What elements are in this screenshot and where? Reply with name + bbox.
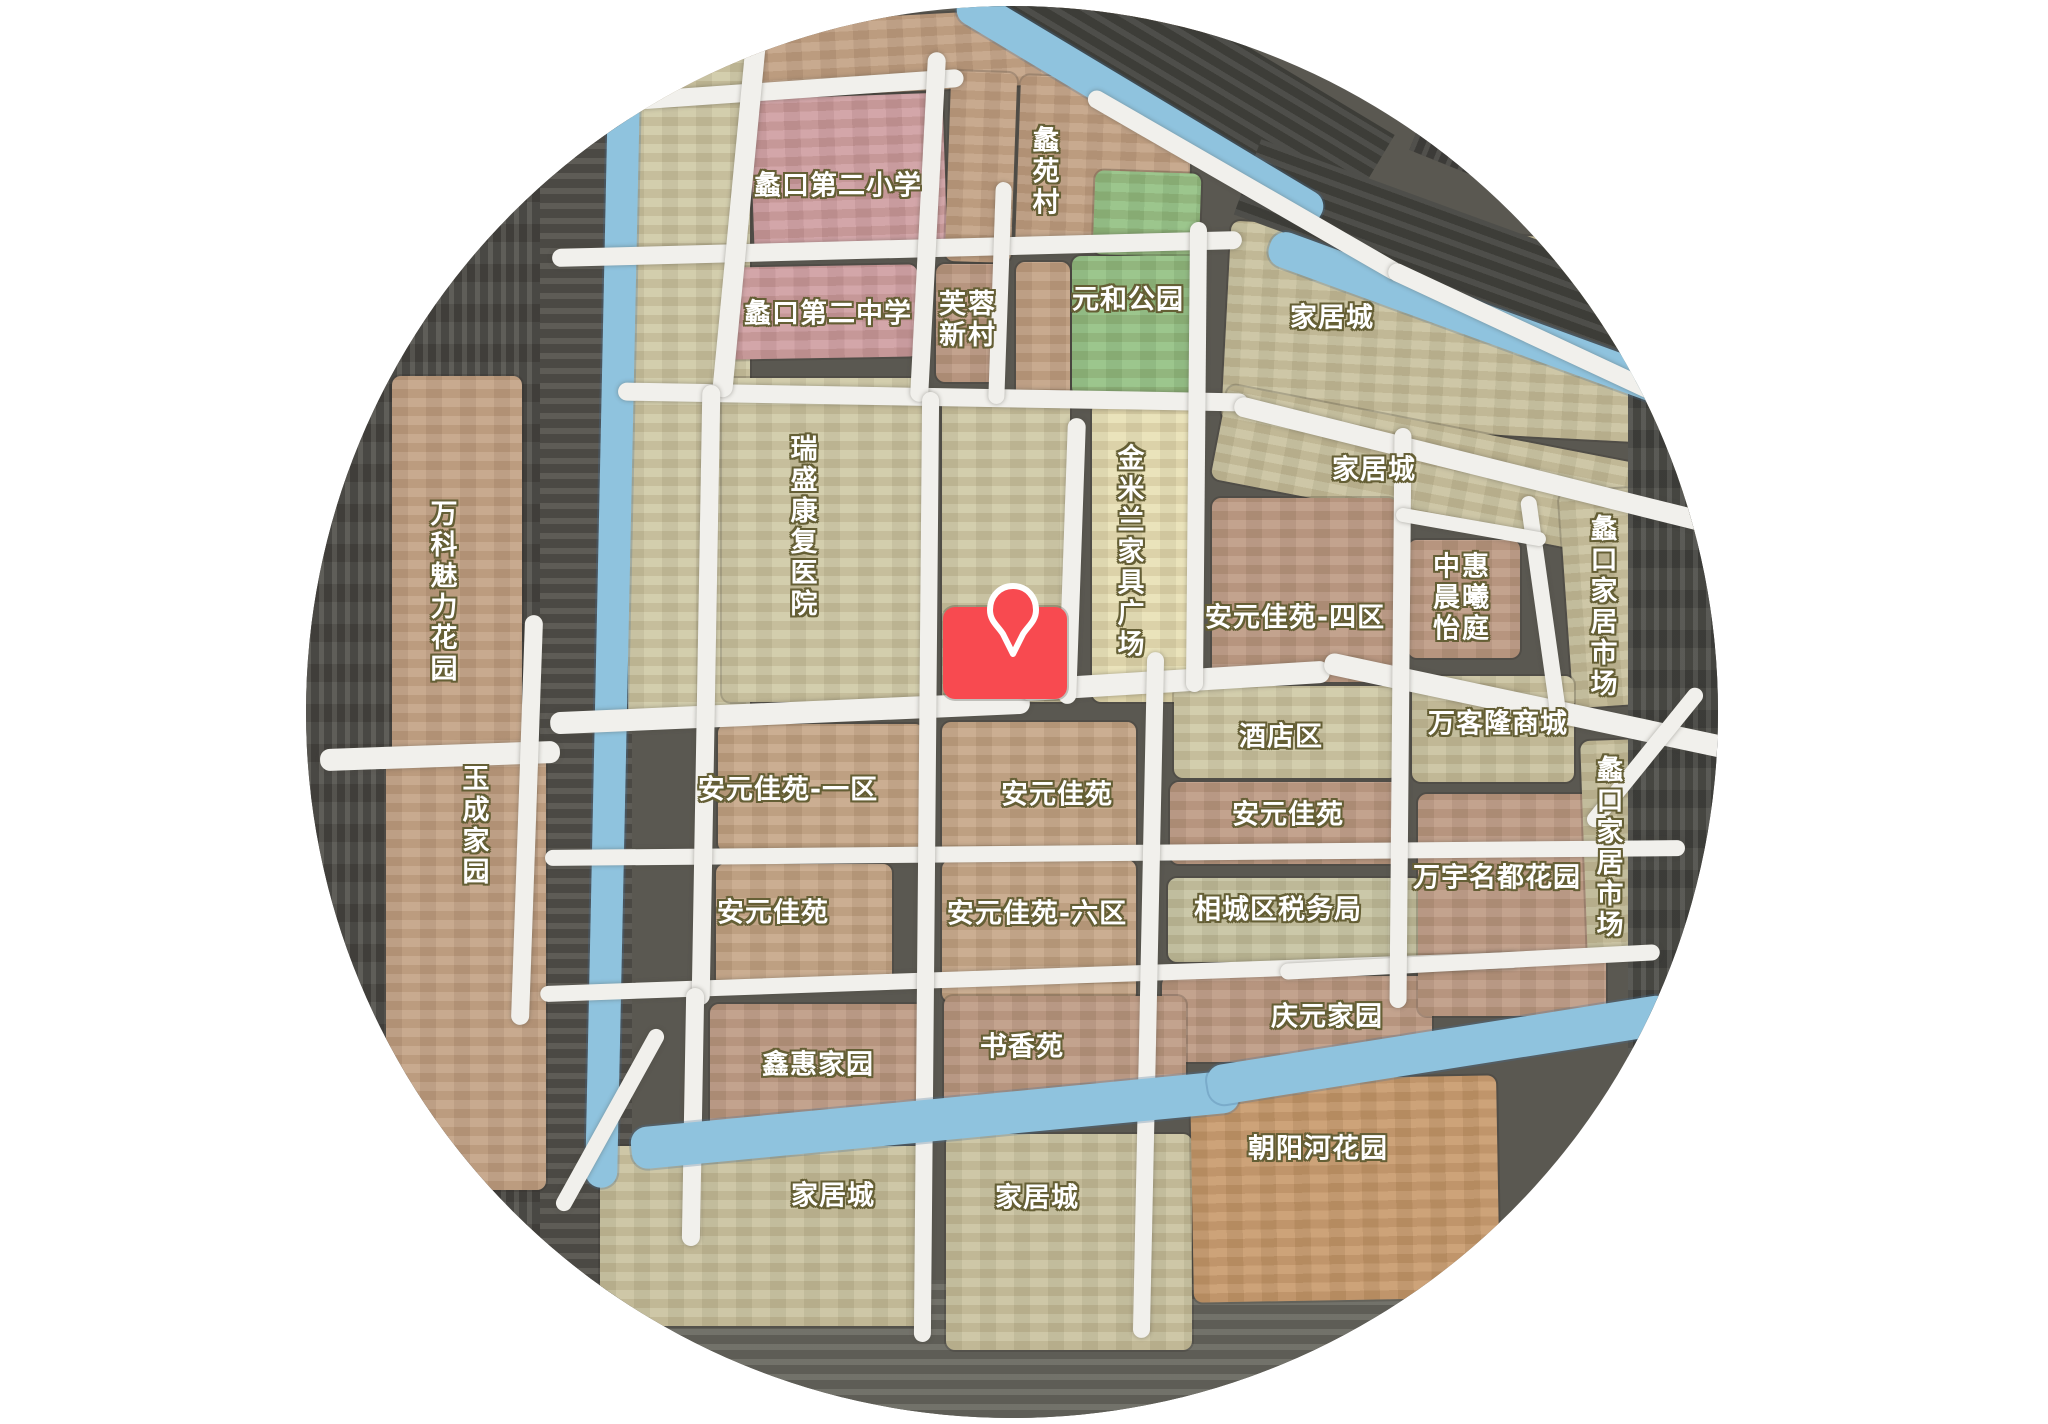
label-liyuan-village: 蠡苑村 [1027, 126, 1058, 219]
label-zhonghui-chenxi: 中惠晨曦怡庭 [1433, 551, 1491, 644]
label-anyuan-east: 安元佳苑 [1232, 799, 1344, 830]
label-shuxiang-yuan: 书香苑 [980, 1031, 1064, 1062]
circular-map-viewport[interactable]: 蠡口第二小学 蠡苑村 蠡口第二中学 芙蓉新村 元和公园 家居城 家居城 瑞盛康复… [306, 6, 1718, 1418]
label-tax-bureau: 相城区税务局 [1194, 894, 1362, 925]
location-pin-icon[interactable] [986, 582, 1040, 662]
label-xinhui-home: 鑫惠家园 [762, 1049, 874, 1080]
label-wanke-meili: 万科魅力花园 [425, 499, 456, 685]
label-hotel-district: 酒店区 [1239, 721, 1323, 752]
parcel-yuanhe-park [1072, 256, 1200, 396]
parcel-jiajucheng-southwest [600, 1146, 930, 1326]
label-anyuan-4: 安元佳苑-四区 [1205, 602, 1385, 633]
parcel-wanyu-mingdu [1418, 794, 1606, 1016]
label-anyuan-center: 安元佳苑 [1001, 779, 1113, 810]
parcel-wanke-meili [392, 376, 522, 758]
label-anyuan-1: 安元佳苑-一区 [698, 774, 878, 805]
label-jiajucheng-northeast: 家居城 [1290, 302, 1374, 333]
label-hospital: 瑞盛康复医院 [785, 434, 816, 620]
label-jiajucheng-southwest: 家居城 [791, 1180, 875, 1211]
label-anyuan-6: 安元佳苑-六区 [947, 898, 1127, 929]
parcel-anyuan-4 [1212, 498, 1397, 682]
parcel-hospital [722, 378, 924, 702]
parcel-jiajucheng-south [946, 1134, 1192, 1350]
road-vertical-park-east [1186, 222, 1207, 692]
label-chaoyanghe-garden: 朝阳河花园 [1248, 1133, 1388, 1164]
label-likou-market-upper: 蠡口家居市场 [1585, 514, 1616, 700]
parcel-chaoyanghe-garden [1190, 1075, 1500, 1302]
parcel-jinmilan-plaza [1092, 402, 1198, 702]
label-primary-school: 蠡口第二小学 [754, 170, 922, 201]
label-wanyu-mingdu: 万宇名都花园 [1413, 862, 1581, 893]
label-jiajucheng-east: 家居城 [1332, 454, 1416, 485]
label-jinmilan-plaza: 金米兰家具广场 [1112, 444, 1143, 661]
label-qingyuan-home: 庆元家园 [1271, 1001, 1383, 1032]
label-wankelong-mall: 万客隆商城 [1428, 708, 1568, 739]
label-yuanhe-park: 元和公园 [1072, 284, 1184, 315]
label-yucheng-home: 玉成家园 [457, 764, 488, 888]
map-canvas: 蠡口第二小学 蠡苑村 蠡口第二中学 芙蓉新村 元和公园 家居城 家居城 瑞盛康复… [306, 6, 1718, 1418]
label-likou-market-lower: 蠡口家居市场 [1591, 755, 1622, 941]
label-jiajucheng-south: 家居城 [995, 1182, 1079, 1213]
label-anyuan-west: 安元佳苑 [717, 897, 829, 928]
map-screenshot: 蠡口第二小学 蠡苑村 蠡口第二中学 芙蓉新村 元和公园 家居城 家居城 瑞盛康复… [0, 0, 2048, 1424]
parcel-mid-tan [1016, 262, 1070, 398]
label-middle-school: 蠡口第二中学 [744, 298, 912, 329]
label-furong-xincun: 芙蓉新村 [939, 289, 997, 351]
